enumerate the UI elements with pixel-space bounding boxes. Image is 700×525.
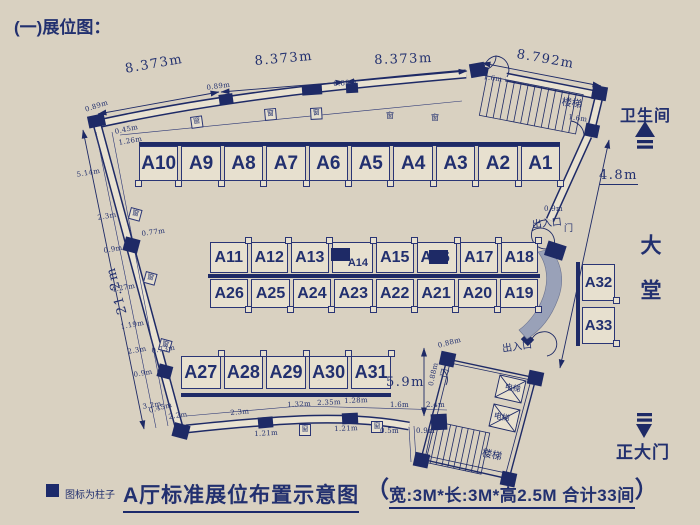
dim-right-wall: 4.8m bbox=[599, 168, 638, 185]
dim-small: 1.32m bbox=[287, 400, 311, 409]
booth-a26: A26 bbox=[210, 279, 248, 308]
booth-a20: A20 bbox=[458, 279, 496, 308]
booth-a28: A28 bbox=[224, 356, 264, 389]
booth-a30: A30 bbox=[309, 356, 349, 389]
booth-a25: A25 bbox=[251, 279, 289, 308]
window-icon: 窗 bbox=[264, 108, 277, 121]
booth-row-top: A10 A9 A8 A7 A6 A5 A4 A3 A2 A1 bbox=[139, 142, 560, 186]
dim-small: 2.4m bbox=[426, 401, 445, 409]
dim-small: 0.9m bbox=[544, 205, 563, 213]
window-icon: 窗 bbox=[190, 115, 204, 129]
dim-top-span-3: 8.373m bbox=[374, 51, 433, 68]
stairs-top-label: 楼梯 bbox=[561, 93, 583, 111]
pillar-legend-swatch bbox=[46, 484, 59, 497]
dim-small: 0.89m bbox=[333, 78, 357, 88]
booth-a8: A8 bbox=[224, 146, 263, 181]
booth-a23: A23 bbox=[334, 279, 372, 308]
booth-a33: A33 bbox=[582, 307, 615, 344]
pillar-legend-label: 图标为柱子 bbox=[65, 486, 115, 501]
dim-bottom-inner: 5.9m bbox=[386, 375, 425, 390]
booth-a12: A12 bbox=[251, 242, 289, 273]
booth-a9: A9 bbox=[181, 146, 220, 181]
caption-detail-body: 宽:3M*长:3M*高2.5M 合计33间 bbox=[389, 481, 635, 509]
booth-a18: A18 bbox=[501, 242, 539, 273]
door-top-label: 门 bbox=[564, 221, 573, 234]
middle-aisle-wall bbox=[208, 274, 540, 278]
dim-small: 2.35m bbox=[317, 398, 341, 407]
caption-open-paren: （ bbox=[366, 478, 389, 500]
booth-a4: A4 bbox=[393, 146, 432, 181]
booth-block-middle: A11 A12 A13 A14 A15 A16 A17 A18 A26 A25 … bbox=[210, 242, 538, 308]
booth-a15: A15 bbox=[376, 242, 414, 273]
booth-a17: A17 bbox=[460, 242, 498, 273]
booth-a10: A10 bbox=[139, 146, 178, 181]
dim-small: 1.28m bbox=[344, 396, 368, 405]
restroom-label: 卫生间 bbox=[620, 102, 671, 126]
pillar-icon bbox=[429, 250, 448, 264]
booth-a21: A21 bbox=[417, 279, 455, 308]
booth-a29: A29 bbox=[266, 356, 306, 389]
dim-small: 1.21m bbox=[334, 424, 358, 433]
dim-small: 2.3m bbox=[230, 407, 250, 417]
booth-a5: A5 bbox=[351, 146, 390, 181]
window-icon: 窗 bbox=[310, 107, 323, 120]
window-icon: 窗 bbox=[299, 424, 311, 436]
caption-close-paren: ） bbox=[635, 478, 658, 500]
page-title: (一)展位图： bbox=[14, 13, 110, 38]
main-gate-arrow-icon bbox=[636, 413, 652, 438]
caption-title: A厅标准展位布置示意图 bbox=[123, 479, 359, 513]
booth-a2: A2 bbox=[478, 146, 517, 181]
lobby-label: 大堂 bbox=[634, 234, 664, 324]
booth-a6: A6 bbox=[309, 146, 348, 181]
booth-a7: A7 bbox=[266, 146, 305, 181]
dim-small: 1.21m bbox=[254, 429, 278, 438]
booth-a27: A27 bbox=[181, 356, 221, 389]
dim-small: 0.5m bbox=[380, 427, 399, 435]
caption-detail: （宽:3M*长:3M*高2.5M 合计33间） bbox=[366, 478, 658, 509]
booth-a19: A19 bbox=[500, 279, 538, 308]
booth-a24: A24 bbox=[293, 279, 331, 308]
booth-row-bottom: A27 A28 A29 A30 A31 bbox=[181, 356, 391, 397]
booth-a1: A1 bbox=[521, 146, 560, 181]
window-label: 窗 bbox=[431, 112, 439, 123]
booth-a11: A11 bbox=[210, 242, 248, 273]
floor-plan: A10 A9 A8 A7 A6 A5 A4 A3 A2 A1 A11 A12 A… bbox=[0, 0, 700, 525]
dim-small: 1.6m bbox=[390, 401, 409, 409]
pillar-icon bbox=[331, 248, 350, 261]
booth-a3: A3 bbox=[436, 146, 475, 181]
dim-small: 0.9m bbox=[416, 427, 435, 435]
booth-a13: A13 bbox=[291, 242, 329, 273]
entrance-top-label: 出入口 bbox=[531, 213, 562, 231]
window-label: 窗 bbox=[386, 110, 394, 121]
main-gate-label: 正大门 bbox=[616, 438, 670, 463]
booth-a32: A32 bbox=[582, 264, 615, 301]
booth-column-side: A32 A33 bbox=[576, 262, 617, 346]
booth-a22: A22 bbox=[376, 279, 414, 308]
